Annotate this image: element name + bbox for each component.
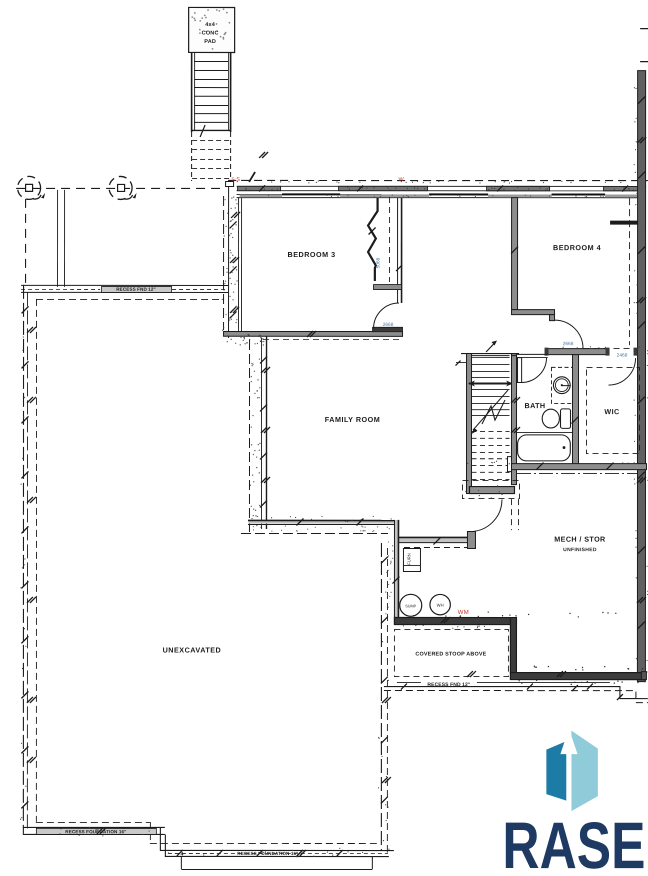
svg-text:RECESS FND 12": RECESS FND 12" xyxy=(427,682,470,688)
svg-text:FAMILY ROOM: FAMILY ROOM xyxy=(325,415,380,424)
svg-text:SUMP: SUMP xyxy=(405,604,416,608)
svg-text:MECH / STOR: MECH / STOR xyxy=(554,535,606,544)
svg-text:2668: 2668 xyxy=(563,341,574,347)
svg-text:RECESS FND 12": RECESS FND 12" xyxy=(116,287,156,292)
svg-text:2468: 2468 xyxy=(617,353,628,359)
svg-text:FURN: FURN xyxy=(406,553,411,565)
svg-text:UNEXCAVATED: UNEXCAVATED xyxy=(163,645,222,654)
svg-text:4x4: 4x4 xyxy=(205,22,216,28)
svg-text:RECESS FOUNDATION 16": RECESS FOUNDATION 16" xyxy=(237,851,298,856)
svg-text:WM: WM xyxy=(458,610,469,616)
svg-text:CONC: CONC xyxy=(202,30,219,36)
svg-text:RASE: RASE xyxy=(502,808,645,876)
svg-text:WIC: WIC xyxy=(604,407,619,416)
svg-text:2668: 2668 xyxy=(383,322,394,328)
svg-text:PAD: PAD xyxy=(204,39,216,45)
svg-text:S: S xyxy=(236,177,240,183)
svg-text:UNFINISHED: UNFINISHED xyxy=(563,547,597,553)
svg-text:COVERED STOOP ABOVE: COVERED STOOP ABOVE xyxy=(415,652,486,658)
svg-text:RECESS FOUNDATION 16": RECESS FOUNDATION 16" xyxy=(65,829,126,834)
svg-text:5068: 5068 xyxy=(376,257,382,268)
svg-text:BEDROOM 4: BEDROOM 4 xyxy=(553,243,601,252)
svg-text:WH: WH xyxy=(437,603,444,608)
svg-text:BEDROOM 3: BEDROOM 3 xyxy=(288,250,336,259)
svg-text:BATH: BATH xyxy=(524,401,545,410)
